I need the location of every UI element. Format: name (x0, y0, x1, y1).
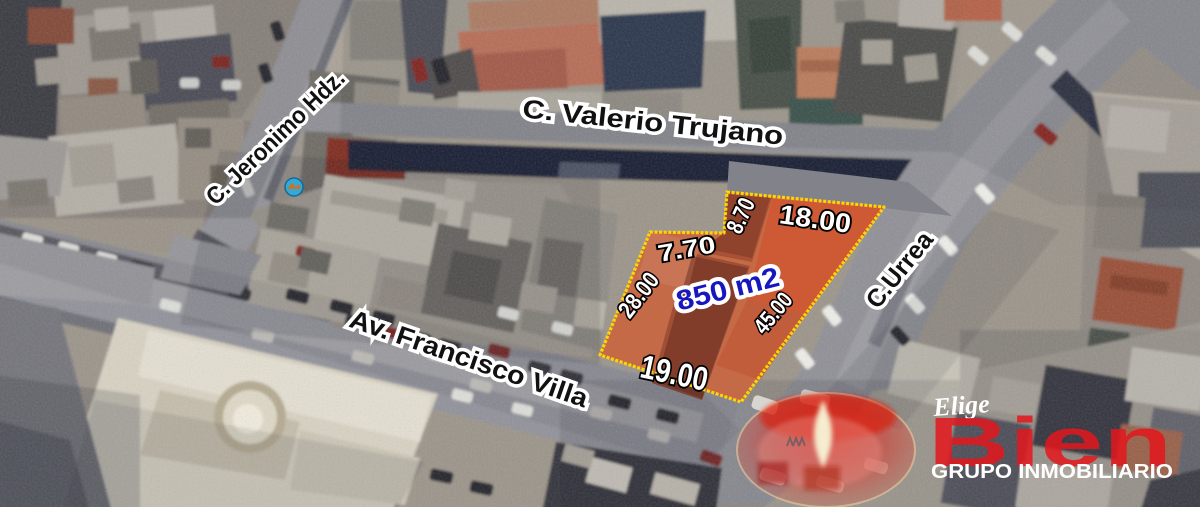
svg-text:GRUPO INMOBILIARIO: GRUPO INMOBILIARIO (931, 461, 1173, 483)
